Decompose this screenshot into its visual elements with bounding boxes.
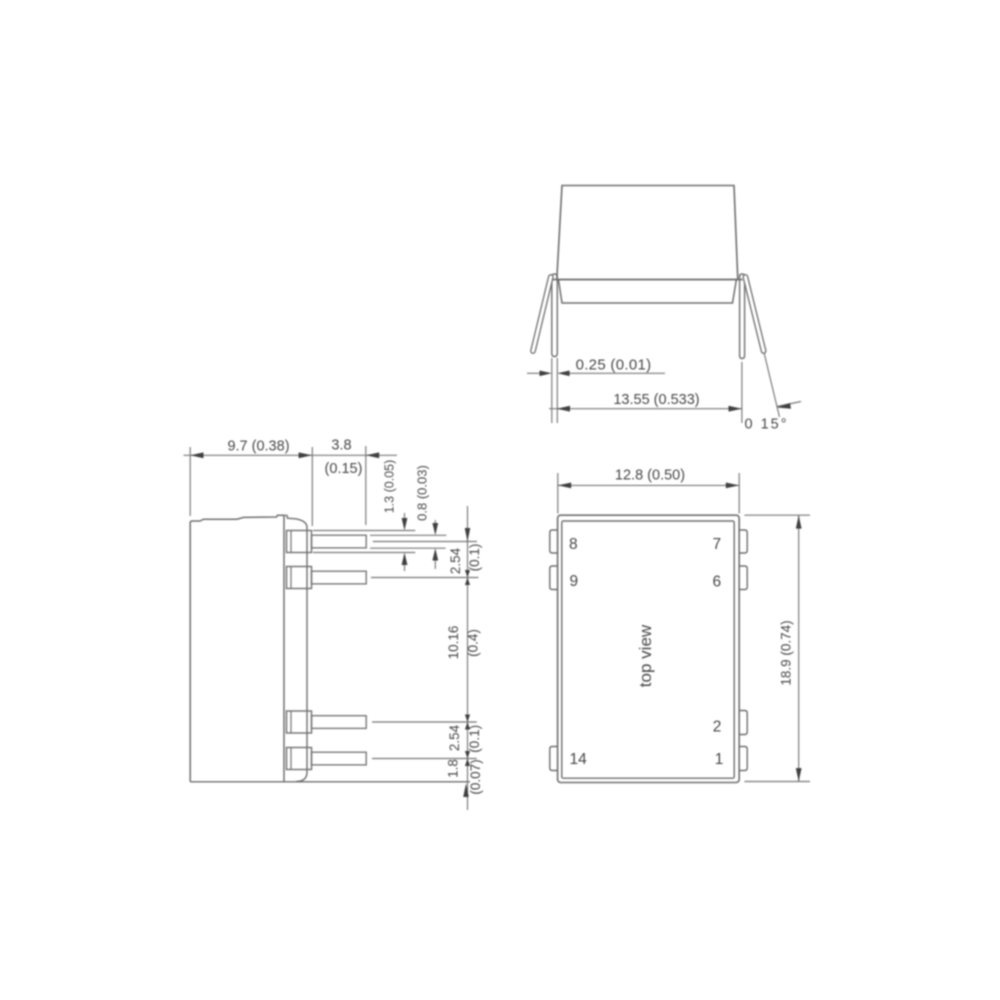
svg-text:1.8: 1.8 (446, 759, 461, 778)
svg-text:2: 2 (713, 719, 722, 736)
svg-text:(0.1): (0.1) (467, 725, 482, 753)
svg-text:3.8: 3.8 (331, 438, 351, 454)
svg-text:0.8 (0.03): 0.8 (0.03) (415, 465, 430, 521)
svg-text:1: 1 (715, 751, 724, 768)
svg-text:10.16: 10.16 (446, 626, 461, 660)
svg-text:6: 6 (713, 574, 722, 591)
svg-text:9: 9 (570, 573, 579, 590)
svg-text:7: 7 (713, 536, 722, 553)
svg-text:(0.1): (0.1) (467, 544, 482, 572)
svg-text:12.8 (0.50): 12.8 (0.50) (615, 468, 685, 484)
svg-text:14: 14 (570, 751, 588, 768)
svg-text:2.54: 2.54 (448, 547, 463, 574)
svg-text:0 15°: 0 15° (744, 417, 788, 433)
svg-text:2.54: 2.54 (447, 724, 462, 751)
svg-text:(0.4): (0.4) (466, 629, 481, 657)
svg-text:1.3 (0.05): 1.3 (0.05) (383, 460, 397, 514)
svg-text:8: 8 (569, 536, 578, 553)
svg-text:9.7 (0.38): 9.7 (0.38) (227, 439, 289, 455)
svg-text:(0.07): (0.07) (468, 759, 483, 794)
svg-text:0.25 (0.01): 0.25 (0.01) (576, 357, 652, 374)
svg-text:13.55 (0.533): 13.55 (0.533) (613, 392, 699, 408)
svg-text:18.9 (0.74): 18.9 (0.74) (779, 620, 794, 685)
svg-text:top view: top view (636, 624, 655, 687)
svg-text:(0.15): (0.15) (325, 461, 363, 477)
